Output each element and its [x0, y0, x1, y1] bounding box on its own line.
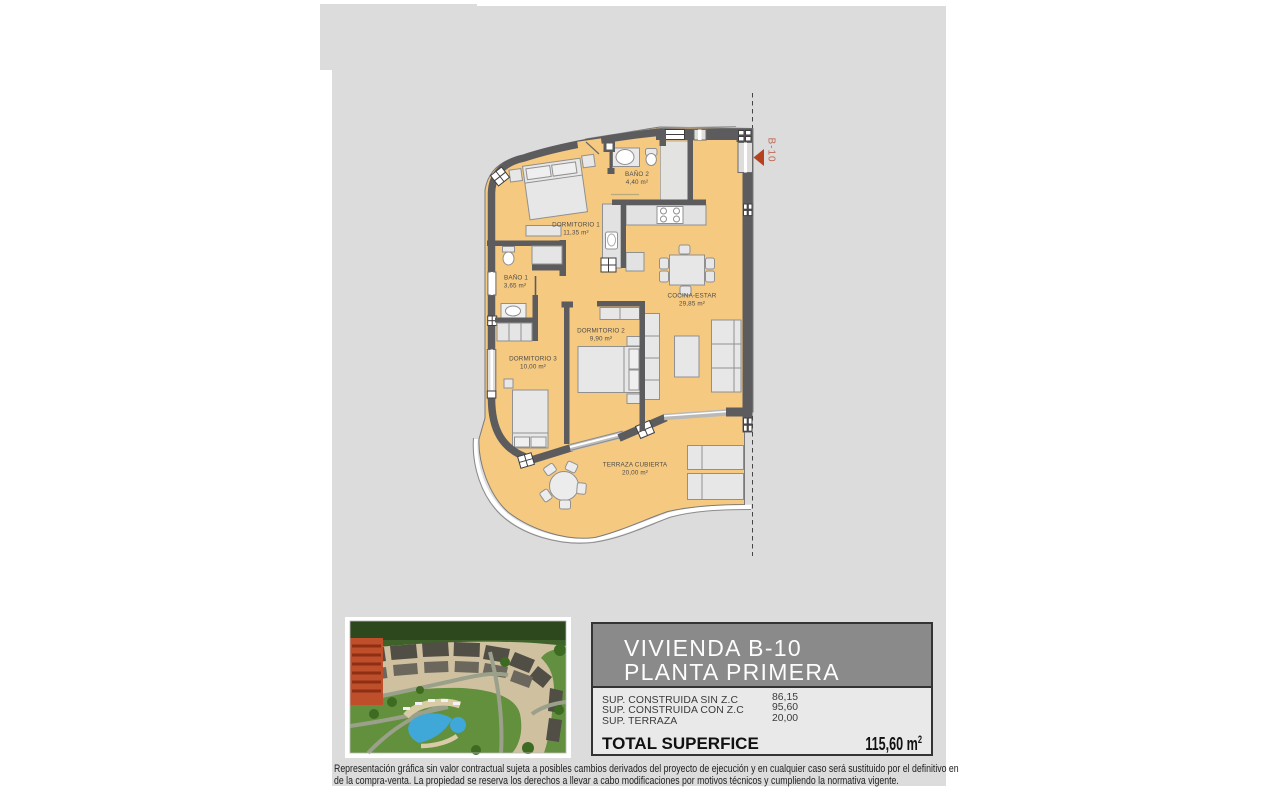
svg-text:TERRAZA CUBIERTA: TERRAZA CUBIERTA — [603, 462, 668, 469]
svg-text:9,90 m²: 9,90 m² — [590, 336, 612, 343]
svg-text:11,35 m²: 11,35 m² — [563, 230, 589, 237]
svg-text:10,00 m²: 10,00 m² — [520, 364, 546, 371]
svg-text:BAÑO 1: BAÑO 1 — [504, 273, 528, 282]
svg-text:29,85 m²: 29,85 m² — [679, 301, 705, 308]
svg-text:20,00 m²: 20,00 m² — [622, 470, 648, 477]
svg-text:DORMITORIO 1: DORMITORIO 1 — [552, 222, 600, 229]
svg-text:BAÑO 2: BAÑO 2 — [625, 169, 649, 178]
svg-text:3,65 m²: 3,65 m² — [504, 283, 526, 290]
svg-text:4,40 m²: 4,40 m² — [626, 179, 648, 186]
svg-text:DORMITORIO 3: DORMITORIO 3 — [509, 356, 557, 363]
svg-text:DORMITORIO 2: DORMITORIO 2 — [577, 328, 625, 335]
svg-text:B-10: B-10 — [766, 138, 777, 163]
svg-text:COCINA-ESTAR: COCINA-ESTAR — [668, 293, 717, 300]
